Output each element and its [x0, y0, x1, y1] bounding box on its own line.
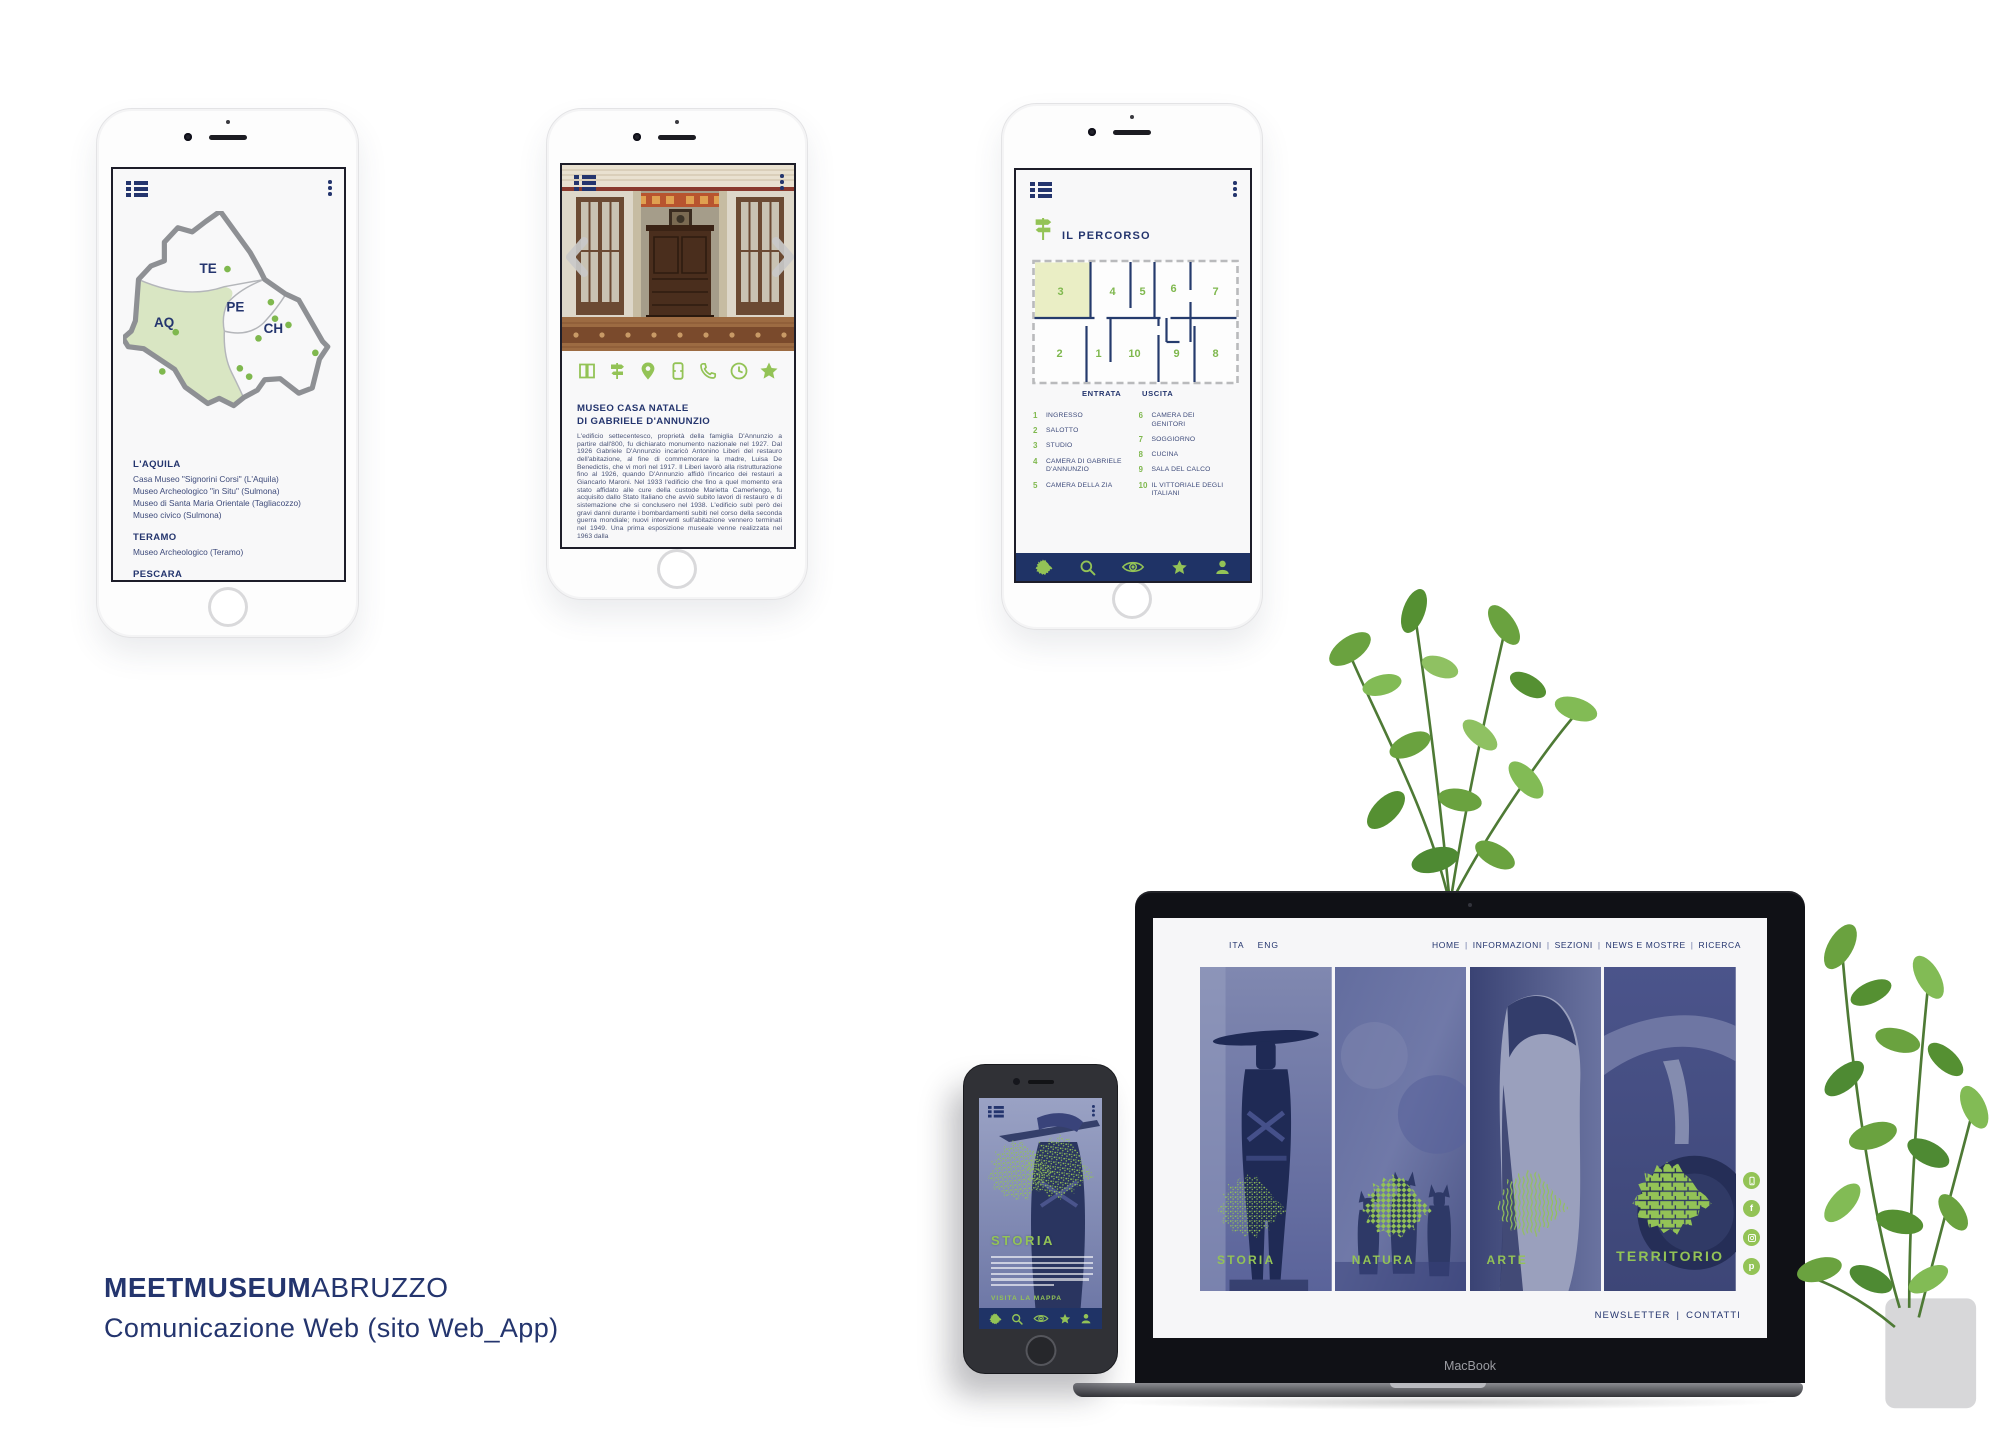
plan-room-number[interactable]: 7	[1212, 286, 1218, 298]
legend-label: CAMERA DEI GENITORI	[1152, 411, 1230, 429]
abruzzo-map-nav-icon[interactable]	[989, 1313, 1002, 1325]
legend-number: 1	[1033, 411, 1046, 421]
museum-list: L'AQUILA Casa Museo "Signorini Corsi" (L…	[133, 459, 334, 582]
legend-label: CUCINA	[1152, 450, 1179, 460]
bottom-nav-bar	[979, 1308, 1102, 1329]
presentation-canvas: TE PE AQ CH L'AQUILA Casa Museo "Signori…	[0, 0, 2000, 1433]
legend-number: 10	[1139, 481, 1152, 499]
section-storia[interactable]: STORIA	[1200, 967, 1332, 1297]
legend-item[interactable]: 4CAMERA DI GABRIELE D'ANNUNZIO	[1033, 457, 1139, 475]
museum-list-item[interactable]: Museo Archeologico (Teramo)	[133, 546, 334, 558]
section-natura[interactable]: NATURA	[1335, 967, 1467, 1297]
legend-item[interactable]: 2SALOTTO	[1033, 426, 1139, 436]
abruzzo-map-nav-icon[interactable]	[1035, 559, 1053, 576]
legend-item[interactable]: 8CUCINA	[1139, 450, 1245, 460]
route-app-screen: IL PERCORSO 3 4 5 6 7	[1014, 168, 1252, 583]
phone-home-button[interactable]	[208, 587, 248, 627]
nav-news-mostre[interactable]: NEWS E MOSTRE	[1606, 940, 1686, 950]
phone-camera	[1088, 128, 1096, 136]
museum-list-section: L'AQUILA Casa Museo "Signorini Corsi" (L…	[133, 459, 334, 521]
museum-list-item[interactable]: Museo civico (Sulmona)	[133, 509, 334, 521]
section-label[interactable]: NATURA	[1352, 1253, 1415, 1267]
legend-number: 9	[1139, 465, 1152, 475]
overflow-menu-icon[interactable]	[328, 180, 332, 196]
storia-title: STORIA	[991, 1233, 1055, 1248]
museum-interior-photo[interactable]	[562, 165, 796, 351]
book-icon[interactable]	[577, 361, 597, 381]
language-switch: ITA ENG	[1229, 940, 1279, 950]
iphone-mockup-route: IL PERCORSO 3 4 5 6 7	[1001, 103, 1263, 630]
abruzzo-map[interactable]: TE PE AQ CH	[123, 211, 335, 413]
footer-separator: |	[1671, 1310, 1687, 1321]
province-label-te[interactable]: TE	[200, 261, 217, 276]
nav-ricerca[interactable]: RICERCA	[1699, 940, 1741, 950]
section-label[interactable]: TERRITORIO	[1616, 1248, 1724, 1264]
natura-image	[1335, 967, 1467, 1291]
macbook-mockup: ITA ENG HOME| INFORMAZIONI| SEZIONI| NEW…	[1073, 891, 1803, 1397]
legend-label: SALA DEL CALCO	[1152, 465, 1211, 475]
phone-speaker	[1113, 130, 1151, 135]
legend-number: 7	[1139, 435, 1152, 445]
museum-list-item[interactable]: Museo di Santa Maria Orientale (Tagliaco…	[133, 497, 334, 509]
plan-room-number[interactable]: 9	[1173, 348, 1179, 360]
eye-icon[interactable]	[1033, 1313, 1049, 1324]
museum-title-line2: DI GABRIELE D'ANNUNZIO	[577, 416, 710, 429]
overflow-menu-icon[interactable]	[780, 174, 784, 190]
phone-sensor-dot	[1130, 115, 1134, 119]
museum-list-section: TERAMO Museo Archeologico (Teramo)	[133, 532, 334, 558]
mobile-app-icon[interactable]	[1743, 1172, 1760, 1189]
museum-title-line1: MUSEO CASA NATALE	[577, 403, 710, 416]
pinterest-icon[interactable]: p	[1743, 1258, 1760, 1275]
section-territorio[interactable]: TERRITORIO	[1604, 967, 1736, 1297]
legend-label: IL VITTORIALE DEGLI ITALIANI	[1152, 481, 1230, 499]
project-caption: MEETMUSEUMABRUZZO Comunicazione Web (sit…	[104, 1272, 559, 1344]
entrance-label: ENTRATA	[1082, 389, 1121, 398]
route-title: IL PERCORSO	[1062, 230, 1151, 242]
legend-label: CAMERA DI GABRIELE D'ANNUNZIO	[1046, 457, 1124, 475]
legend-item[interactable]: 6CAMERA DEI GENITORI	[1139, 411, 1245, 429]
profile-icon[interactable]	[1080, 1313, 1092, 1324]
site-footer: NEWSLETTER | CONTATTI	[1595, 1310, 1741, 1321]
legend-item[interactable]: 3STUDIO	[1033, 441, 1139, 451]
nav-home[interactable]: HOME	[1432, 940, 1460, 950]
province-label-ch[interactable]: CH	[264, 321, 283, 336]
ticket-icon[interactable]	[668, 361, 688, 381]
bottom-nav-bar	[1016, 553, 1250, 581]
star-icon[interactable]	[1059, 1313, 1071, 1325]
signpost-icon	[1032, 216, 1054, 242]
museum-list-section: PESCARA Museo Casa Natale di Gabriele D'…	[133, 569, 334, 582]
museum-list-item[interactable]: Museo Archeologico "in Situ" (Sulmona)	[133, 485, 334, 497]
phone-sensor-dot	[226, 120, 230, 124]
brand-title: MEETMUSEUMABRUZZO	[104, 1272, 559, 1304]
map-app-screen: TE PE AQ CH L'AQUILA Casa Museo "Signori…	[111, 167, 346, 582]
brand-bold: MEETMUSEUM	[104, 1272, 311, 1303]
storia-app-screen: STORIA VISITA LA MAPPA	[979, 1098, 1102, 1329]
plan-room-number[interactable]: 10	[1128, 348, 1140, 360]
phone-camera	[1013, 1078, 1020, 1085]
plan-room-number[interactable]: 8	[1212, 348, 1218, 360]
legend-number: 2	[1033, 426, 1046, 436]
signpost-icon[interactable]	[607, 361, 627, 381]
menu-list-icon[interactable]	[126, 181, 148, 197]
macbook-label: MacBook	[1135, 1359, 1805, 1373]
iphone-mockup-museum: MUSEO CASA NATALE DI GABRIELE D'ANNUNZIO…	[546, 108, 808, 600]
visita-la-mappa-link[interactable]: VISITA LA MAPPA	[991, 1295, 1062, 1302]
arte-image	[1470, 967, 1602, 1291]
province-label-aq[interactable]: AQ	[154, 315, 174, 330]
webcam-dot	[1468, 903, 1472, 907]
brand-light: ABRUZZO	[311, 1272, 448, 1303]
legend-item[interactable]: 7SOGGIORNO	[1139, 435, 1245, 445]
lang-ita[interactable]: ITA	[1229, 940, 1245, 950]
iphone-mockup-map: TE PE AQ CH L'AQUILA Casa Museo "Signori…	[96, 108, 359, 638]
menu-list-icon[interactable]	[988, 1106, 1004, 1118]
museum-description: L'edificio settecentesco, proprietà dell…	[577, 433, 782, 540]
phone-speaker	[209, 135, 247, 140]
location-pin-icon[interactable]	[638, 361, 658, 381]
arte-pattern-icon	[1492, 1167, 1572, 1241]
caption-subtitle: Comunicazione Web (sito Web_App)	[104, 1313, 559, 1344]
nav-sezioni[interactable]: SEZIONI	[1555, 940, 1593, 950]
phone-home-button[interactable]	[1112, 579, 1152, 619]
section-heading: L'AQUILA	[133, 459, 334, 470]
plan-room-number[interactable]: 5	[1139, 286, 1145, 298]
plan-room-number[interactable]: 2	[1056, 348, 1062, 360]
storia-image	[1200, 967, 1332, 1291]
phone-sensor-dot	[675, 120, 679, 124]
phone-speaker	[658, 135, 696, 140]
legend-label: SOGGIORNO	[1152, 435, 1196, 445]
legend-item[interactable]: 9SALA DEL CALCO	[1139, 465, 1245, 475]
phone-speaker	[1028, 1080, 1054, 1084]
storia-pattern-icon	[1214, 1172, 1290, 1242]
territorio-pattern-icon	[1629, 1159, 1715, 1239]
legend-item[interactable]: 1INGRESSO	[1033, 411, 1139, 421]
search-icon[interactable]	[1079, 559, 1096, 576]
section-heading: PESCARA	[133, 569, 334, 580]
plan-room-number[interactable]: 4	[1109, 286, 1116, 298]
footer-newsletter[interactable]: NEWSLETTER	[1595, 1310, 1671, 1321]
plant-decoration-top	[1290, 575, 1610, 905]
legend-label: CAMERA DELLA ZIA	[1046, 481, 1112, 491]
website-screen: ITA ENG HOME| INFORMAZIONI| SEZIONI| NEW…	[1153, 918, 1767, 1338]
star-icon[interactable]	[759, 361, 779, 381]
phone-camera	[184, 133, 192, 141]
legend-item[interactable]: 10IL VITTORIALE DEGLI ITALIANI	[1139, 481, 1245, 499]
museum-list-item[interactable]: Casa Museo "Signorini Corsi" (L'Aquila)	[133, 473, 334, 485]
eye-icon[interactable]	[1121, 559, 1145, 575]
macbook-notch	[1390, 1383, 1486, 1388]
legend-label: SALOTTO	[1046, 426, 1079, 436]
profile-icon[interactable]	[1214, 559, 1231, 575]
route-header: IL PERCORSO	[1032, 216, 1151, 242]
section-arte[interactable]: ARTE	[1470, 967, 1602, 1297]
plant-decoration-right	[1785, 885, 2000, 1425]
legend-number: 4	[1033, 457, 1046, 475]
overflow-menu-icon[interactable]	[1233, 181, 1237, 197]
plan-room-number[interactable]: 6	[1170, 283, 1176, 295]
storia-mosaic-icon	[985, 1132, 1095, 1212]
star-icon[interactable]	[1171, 559, 1188, 576]
menu-list-icon[interactable]	[574, 175, 596, 191]
search-icon[interactable]	[1011, 1313, 1023, 1325]
legend-number: 5	[1033, 481, 1046, 491]
museum-app-screen: MUSEO CASA NATALE DI GABRIELE D'ANNUNZIO…	[560, 163, 796, 549]
legend-label: INGRESSO	[1046, 411, 1083, 421]
plant-pot	[1885, 1298, 1976, 1408]
legend-label: STUDIO	[1046, 441, 1072, 451]
phone-camera	[633, 133, 641, 141]
section-heading: TERAMO	[133, 532, 334, 543]
section-columns: STORIA NATURA	[1200, 967, 1736, 1297]
floor-plan[interactable]: 3 4 5 6 7 2 1 10 9 8	[1030, 258, 1241, 386]
legend-number: 6	[1139, 411, 1152, 429]
nav-informazioni[interactable]: INFORMAZIONI	[1473, 940, 1542, 950]
legend-item[interactable]: 5CAMERA DELLA ZIA	[1033, 481, 1139, 491]
storia-text-placeholder	[991, 1256, 1093, 1289]
site-nav: HOME| INFORMAZIONI| SEZIONI| NEWS E MOST…	[1432, 940, 1741, 950]
nav-separator: |	[1686, 940, 1699, 950]
dark-iphone-mockup: STORIA VISITA LA MAPPA	[963, 1064, 1118, 1374]
nav-separator: |	[1460, 940, 1473, 950]
lang-eng[interactable]: ENG	[1258, 940, 1279, 950]
province-label-pe[interactable]: PE	[226, 299, 244, 314]
footer-contatti[interactable]: CONTATTI	[1686, 1310, 1741, 1321]
museum-action-bar	[577, 361, 779, 381]
plan-room-number[interactable]: 1	[1095, 348, 1101, 360]
menu-list-icon[interactable]	[1030, 182, 1052, 198]
phone-home-button[interactable]	[1025, 1335, 1056, 1366]
natura-pattern-icon	[1359, 1172, 1435, 1242]
museum-title: MUSEO CASA NATALE DI GABRIELE D'ANNUNZIO	[577, 403, 710, 429]
exit-label: USCITA	[1142, 389, 1173, 398]
clock-icon[interactable]	[729, 361, 749, 381]
facebook-icon[interactable]: f	[1743, 1200, 1760, 1217]
instagram-icon[interactable]	[1743, 1229, 1760, 1246]
phone-icon[interactable]	[698, 361, 718, 381]
plan-room-number[interactable]: 3	[1057, 286, 1063, 298]
nav-separator: |	[1593, 940, 1606, 950]
phone-home-button[interactable]	[657, 549, 697, 589]
territorio-image	[1604, 967, 1736, 1291]
legend-number: 8	[1139, 450, 1152, 460]
section-label[interactable]: STORIA	[1217, 1253, 1275, 1267]
macbook-shadow	[1103, 1394, 1783, 1410]
nav-separator: |	[1542, 940, 1555, 950]
legend-number: 3	[1033, 441, 1046, 451]
room-legend: 1INGRESSO 2SALOTTO 3STUDIO 4CAMERA DI GA…	[1033, 411, 1244, 504]
section-label[interactable]: ARTE	[1487, 1253, 1528, 1267]
